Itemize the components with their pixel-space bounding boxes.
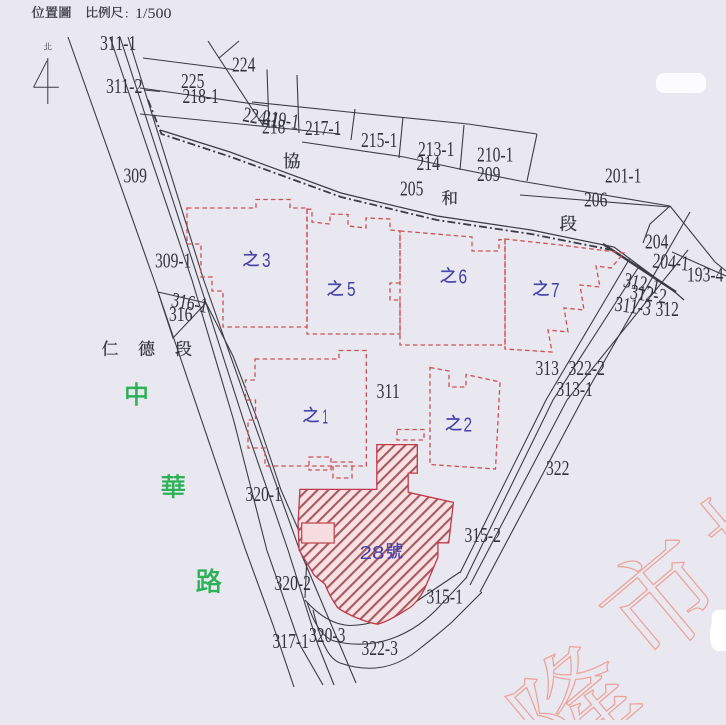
svg-text:209: 209 xyxy=(477,162,500,186)
svg-text:311-1: 311-1 xyxy=(100,31,136,55)
svg-text:311-2: 311-2 xyxy=(106,74,142,98)
svg-text:312: 312 xyxy=(656,297,679,321)
svg-text:2: 2 xyxy=(464,414,473,437)
svg-text::: : xyxy=(125,6,129,21)
svg-text:217-1: 217-1 xyxy=(305,116,341,140)
svg-text:317-1: 317-1 xyxy=(273,629,309,653)
svg-text:322: 322 xyxy=(546,456,569,480)
svg-text:5: 5 xyxy=(347,278,356,301)
svg-text:320-2: 320-2 xyxy=(275,571,311,595)
svg-text:320-1: 320-1 xyxy=(246,482,282,506)
svg-text:204-1: 204-1 xyxy=(652,249,690,276)
svg-text:3: 3 xyxy=(262,249,271,272)
svg-text:311-3: 311-3 xyxy=(613,292,652,321)
svg-text:205: 205 xyxy=(400,177,423,201)
svg-text:315-1: 315-1 xyxy=(427,585,463,609)
svg-text:7: 7 xyxy=(551,279,560,302)
svg-text:309: 309 xyxy=(124,164,147,188)
svg-text:315-2: 315-2 xyxy=(465,523,501,547)
svg-text:201-1: 201-1 xyxy=(605,164,641,188)
svg-text:218: 218 xyxy=(262,115,285,139)
svg-text:309-1: 309-1 xyxy=(155,249,191,273)
svg-text:316: 316 xyxy=(169,302,193,326)
svg-text:214: 214 xyxy=(417,151,441,175)
svg-text:215-1: 215-1 xyxy=(361,128,397,152)
svg-text:218-1: 218-1 xyxy=(183,84,219,108)
svg-text:206: 206 xyxy=(584,188,608,212)
svg-text:313: 313 xyxy=(536,356,559,380)
svg-text:224: 224 xyxy=(232,53,256,77)
svg-text:313-1: 313-1 xyxy=(557,377,593,401)
svg-text:320-3: 320-3 xyxy=(309,623,345,647)
svg-text:1: 1 xyxy=(323,406,329,429)
svg-text:193-4: 193-4 xyxy=(687,263,724,287)
svg-text:6: 6 xyxy=(459,266,468,289)
svg-text:311: 311 xyxy=(377,379,400,403)
svg-text:28: 28 xyxy=(360,542,385,563)
svg-text:322-3: 322-3 xyxy=(362,636,398,660)
svg-text:1/500: 1/500 xyxy=(135,6,172,22)
